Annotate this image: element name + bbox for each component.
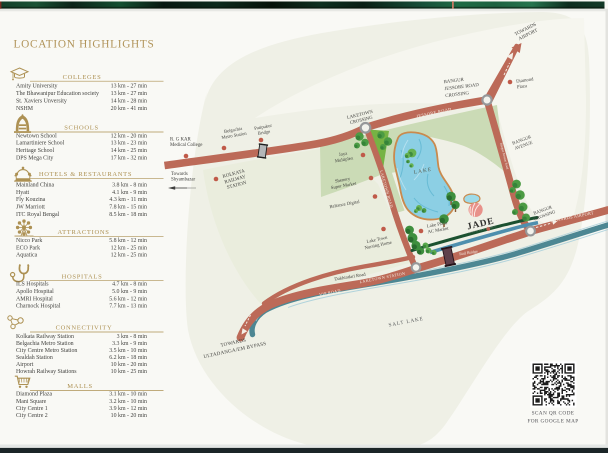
svg-text:CONNECTIVITY: CONNECTIVITY xyxy=(56,325,113,332)
svg-text:10 km - 25 min: 10 km - 25 min xyxy=(111,369,147,375)
svg-text:Fly Kouzina: Fly Kouzina xyxy=(16,197,46,203)
svg-text:14 km - 28 min: 14 km - 28 min xyxy=(111,99,147,105)
svg-text:Mainland China: Mainland China xyxy=(16,183,55,189)
svg-text:HOSPITALS: HOSPITALS xyxy=(62,273,103,280)
svg-text:7.8 km - 15 min: 7.8 km - 15 min xyxy=(109,205,147,211)
svg-text:Heritage School: Heritage School xyxy=(16,148,54,154)
svg-text:5.0 km - 9 min: 5.0 km - 9 min xyxy=(112,289,147,295)
svg-text:St. Xaviers Unversity: St. Xaviers Unversity xyxy=(16,99,67,105)
svg-text:Sealdah Station: Sealdah Station xyxy=(16,355,53,361)
svg-text:7.7 km - 13 min: 7.7 km - 13 min xyxy=(109,304,147,310)
svg-text:City Centre 1: City Centre 1 xyxy=(16,406,48,412)
svg-text:Aquatica: Aquatica xyxy=(16,253,38,259)
svg-text:R. G KAR: R. G KAR xyxy=(170,137,192,142)
svg-text:Kolkata Railway Station: Kolkata Railway Station xyxy=(16,334,74,340)
svg-text:ILS Hospitals: ILS Hospitals xyxy=(16,282,49,288)
svg-text:FOR GOOGLE MAP: FOR GOOGLE MAP xyxy=(527,418,578,424)
svg-text:Shyambazar: Shyambazar xyxy=(171,178,196,183)
svg-text:3 km - 8 min: 3 km - 8 min xyxy=(117,334,147,340)
svg-text:SCAN QR CODE: SCAN QR CODE xyxy=(532,411,575,417)
svg-text:MALLS: MALLS xyxy=(67,383,93,390)
svg-text:The Bhawanipur Education socie: The Bhawanipur Education society xyxy=(16,91,99,97)
svg-text:Charnock Hospital: Charnock Hospital xyxy=(16,304,61,310)
svg-text:3.8 km - 8 min: 3.8 km - 8 min xyxy=(112,183,147,189)
svg-text:17 km - 32 min: 17 km - 32 min xyxy=(111,155,147,161)
svg-text:3.1 km - 10 min: 3.1 km - 10 min xyxy=(109,392,147,398)
svg-text:DPS Mega City: DPS Mega City xyxy=(16,155,53,161)
svg-text:3.2 km - 10 min: 3.2 km - 10 min xyxy=(109,399,147,405)
svg-text:12 km - 25 min: 12 km - 25 min xyxy=(111,253,147,259)
svg-text:6.2 km - 18 min: 6.2 km - 18 min xyxy=(109,355,147,361)
svg-text:4.3 km - 11 min: 4.3 km - 11 min xyxy=(109,197,147,203)
svg-text:City Centre 2: City Centre 2 xyxy=(16,413,48,419)
svg-text:13 km - 23 min: 13 km - 23 min xyxy=(111,141,147,147)
svg-text:NSHM: NSHM xyxy=(16,106,34,112)
svg-text:Lamartiniere School: Lamartiniere School xyxy=(16,141,65,147)
svg-text:Belgachia Metro Station: Belgachia Metro Station xyxy=(16,341,74,347)
svg-text:8.5 km - 18 min: 8.5 km - 18 min xyxy=(109,212,147,218)
svg-text:Nicco Park: Nicco Park xyxy=(16,238,42,244)
svg-text:13 km - 27 min: 13 km - 27 min xyxy=(111,84,147,90)
svg-text:12 km - 20 min: 12 km - 20 min xyxy=(111,133,147,139)
svg-text:3.3 km - 9 min: 3.3 km - 9 min xyxy=(112,341,147,347)
svg-text:Airport: Airport xyxy=(16,362,34,368)
svg-text:20 km - 41 min: 20 km - 41 min xyxy=(111,106,147,112)
svg-text:14 km - 25 min: 14 km - 25 min xyxy=(111,148,147,154)
svg-text:Hyatt: Hyatt xyxy=(16,190,29,196)
svg-text:Newtown School: Newtown School xyxy=(16,133,57,139)
svg-text:10 km - 20 min: 10 km - 20 min xyxy=(111,362,147,368)
svg-text:COLLEGES: COLLEGES xyxy=(63,74,102,81)
svg-text:HOTELS & RESTAURANTS: HOTELS & RESTAURANTS xyxy=(39,171,132,178)
svg-text:5.8 km - 12 min: 5.8 km - 12 min xyxy=(109,238,147,244)
svg-text:Medical College: Medical College xyxy=(170,143,202,148)
svg-text:Howrah Railway Stations: Howrah Railway Stations xyxy=(16,369,77,375)
svg-text:SCHOOLS: SCHOOLS xyxy=(64,125,99,132)
svg-text:AMRI Hospital: AMRI Hospital xyxy=(16,296,53,302)
svg-text:Apollo Hospital: Apollo Hospital xyxy=(16,289,54,295)
svg-text:Towards: Towards xyxy=(171,172,188,177)
svg-text:Mani Square: Mani Square xyxy=(16,399,47,405)
svg-text:City Centre Metro Station: City Centre Metro Station xyxy=(16,348,77,354)
svg-text:LOCATION HIGHLIGHTS: LOCATION HIGHLIGHTS xyxy=(14,39,155,51)
svg-text:4.7 km - 8 min: 4.7 km - 8 min xyxy=(112,282,147,288)
svg-text:ATTRACTIONS: ATTRACTIONS xyxy=(57,229,109,236)
svg-text:Diamond Plaza: Diamond Plaza xyxy=(16,392,53,398)
svg-text:3.5 km - 10 min: 3.5 km - 10 min xyxy=(109,348,147,354)
svg-text:5.6 km - 12 min: 5.6 km - 12 min xyxy=(109,296,147,302)
svg-text:12 km - 25 min: 12 km - 25 min xyxy=(111,245,147,251)
svg-text:3.9 km - 12 min: 3.9 km - 12 min xyxy=(109,406,147,412)
svg-text:JW Marriott: JW Marriott xyxy=(16,205,45,211)
svg-text:ITC Royal Bengal: ITC Royal Bengal xyxy=(16,212,60,218)
svg-text:ECO Park: ECO Park xyxy=(16,245,40,251)
svg-text:13 km - 27 min: 13 km - 27 min xyxy=(111,91,147,97)
svg-text:10 km - 20 min: 10 km - 20 min xyxy=(111,413,147,419)
svg-text:Amity University: Amity University xyxy=(16,84,57,90)
svg-text:4.1 km - 9 min: 4.1 km - 9 min xyxy=(112,190,147,196)
